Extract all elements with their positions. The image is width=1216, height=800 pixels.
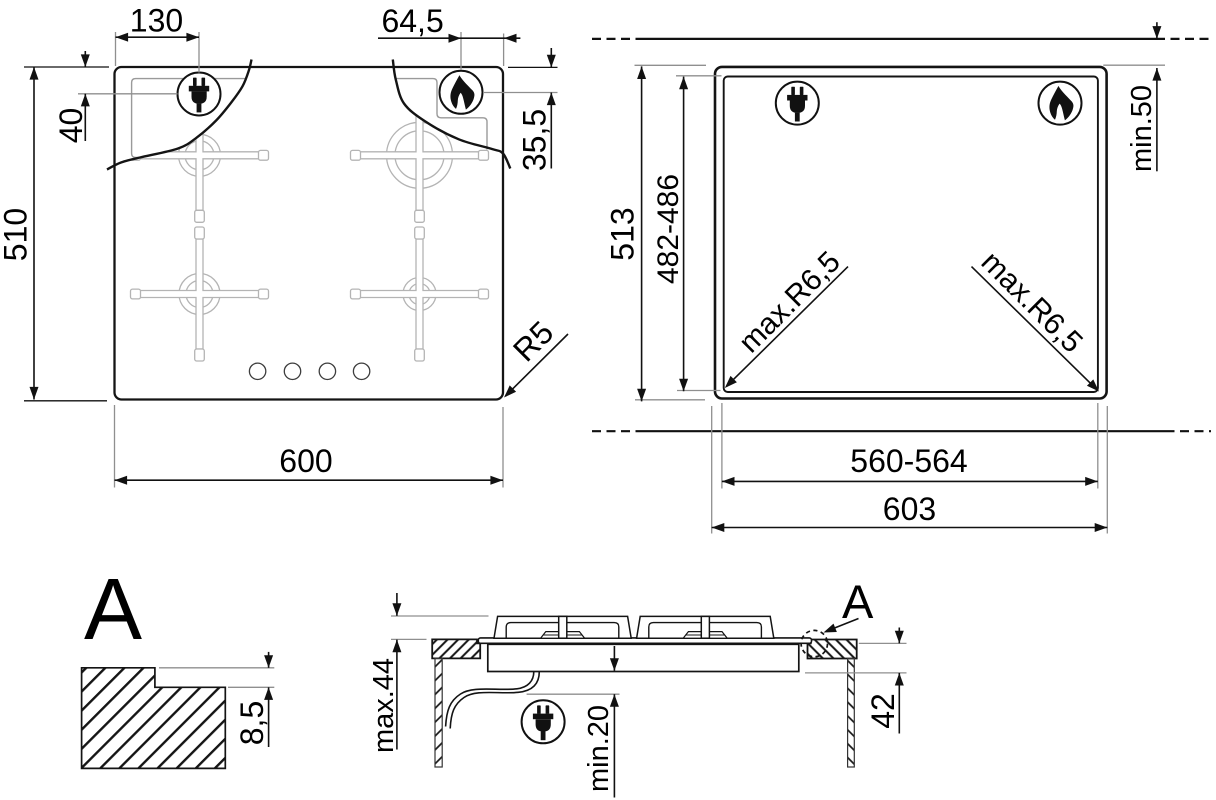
svg-text:130: 130 [130, 3, 183, 39]
svg-text:513: 513 [605, 207, 641, 260]
svg-text:min.20: min.20 [583, 705, 615, 792]
svg-text:8,5: 8,5 [234, 701, 270, 745]
svg-text:max.44: max.44 [368, 658, 400, 753]
svg-text:482-486: 482-486 [652, 174, 685, 284]
svg-text:560-564: 560-564 [850, 443, 967, 479]
svg-text:min.50: min.50 [1126, 85, 1158, 172]
svg-text:600: 600 [279, 443, 332, 479]
svg-text:A: A [84, 561, 142, 658]
svg-text:42: 42 [865, 693, 901, 729]
svg-text:64,5: 64,5 [381, 3, 443, 39]
svg-text:35,5: 35,5 [517, 109, 553, 171]
svg-text:40: 40 [53, 108, 89, 144]
svg-text:510: 510 [0, 208, 34, 261]
svg-text:603: 603 [883, 491, 936, 527]
svg-text:A: A [842, 575, 874, 628]
